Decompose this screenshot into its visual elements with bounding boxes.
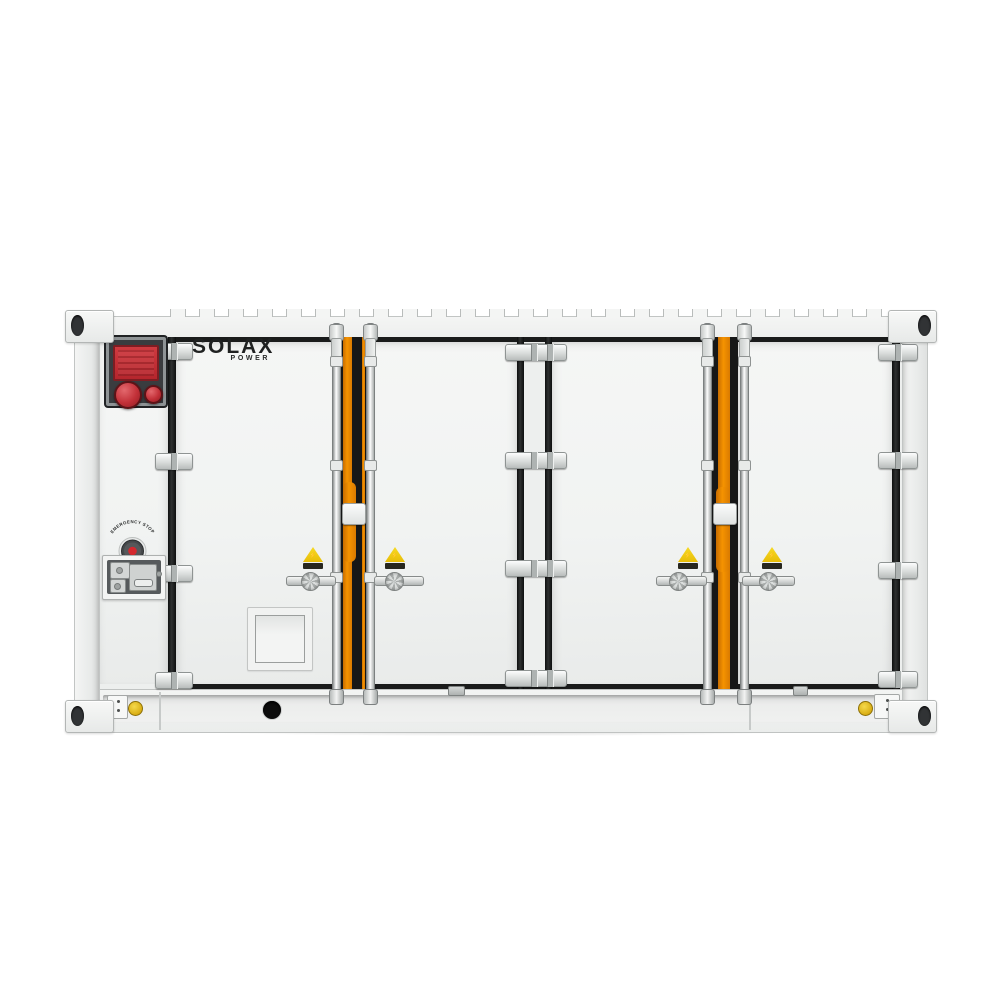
channel-divider [159, 692, 161, 730]
rod-guide [364, 460, 377, 471]
warning-triangle-icon: ⚡ [762, 547, 782, 562]
door-hinge-double [505, 344, 567, 361]
product-image-canvas: ⚡ DANGER ⚡ DANGER ⚡ DANGER ⚡ DANGER SOLA… [0, 0, 1000, 1000]
brand-name: SOLAX [192, 337, 272, 357]
rod-guide [701, 356, 714, 367]
outlet-plate [129, 564, 157, 591]
door-edge-strip-right [892, 337, 900, 689]
socket-pin [117, 709, 120, 712]
switch-dot [116, 567, 123, 574]
corner-casting-top-right [888, 310, 937, 343]
warning-triangle-icon: ⚡ [678, 547, 698, 562]
corner-casting-top-left [65, 310, 114, 343]
sill-latch [448, 686, 465, 696]
drain-hole [263, 701, 281, 719]
control-screen [113, 345, 159, 381]
control-box [104, 335, 168, 408]
emergency-stop-red-cap [128, 547, 137, 556]
outlet-slot [134, 579, 153, 587]
lock-rod [703, 323, 712, 705]
door-hinge-double [505, 670, 567, 687]
emergency-stop-arc-label: EMERGENCY STOP [109, 519, 155, 534]
brand-logo: SOLAX POWER [192, 337, 272, 362]
lightning-icon: ⚡ [766, 551, 779, 561]
warning-label: ⚡ DANGER [676, 547, 700, 569]
bottom-channel [103, 695, 899, 723]
danger-strip: DANGER [762, 563, 782, 569]
duct-clip [713, 503, 737, 525]
corner-post-left [74, 338, 100, 706]
door-gasket-top [168, 337, 900, 342]
door-hinge [878, 562, 918, 579]
danger-strip: DANGER [678, 563, 698, 569]
socket-pin [117, 700, 120, 703]
warning-label: ⚡ DANGER [383, 547, 407, 569]
casting-hole [918, 315, 931, 336]
handle-hub [301, 572, 320, 591]
switch-dot [114, 583, 121, 590]
door-edge-strip-left [168, 337, 176, 689]
door-3 [552, 342, 711, 684]
control-button-large [114, 381, 142, 409]
rod-guide [364, 356, 377, 367]
warning-label: ⚡ DANGER [760, 547, 784, 569]
casting-hole [71, 315, 84, 336]
door-hinge [155, 453, 193, 470]
cable-duct-left [341, 337, 367, 689]
sill-latch [793, 686, 808, 696]
casting-hole [918, 706, 931, 726]
access-plate-inner [255, 615, 305, 663]
door-hinge [878, 452, 918, 469]
lightning-icon: ⚡ [307, 551, 320, 561]
rod-foot [363, 689, 378, 705]
door-hinge [878, 671, 918, 688]
door-handle [742, 576, 795, 586]
door-edge-strip-center-b [545, 337, 552, 689]
access-plate [247, 607, 313, 671]
lock-rod [332, 323, 341, 705]
rod-foot [737, 689, 752, 705]
rod-foot [329, 689, 344, 705]
warning-triangle-icon: ⚡ [303, 547, 323, 562]
rod-guide [701, 460, 714, 471]
rod-foot [700, 689, 715, 705]
emergency-stop-label-text: EMERGENCY STOP [109, 519, 155, 534]
rod-guide [330, 356, 343, 367]
breaker-switch-small [110, 579, 126, 593]
rod-guide [738, 356, 751, 367]
door-edge-strip-center-a [517, 337, 524, 689]
duct-clip [342, 503, 366, 525]
warning-triangle-icon: ⚡ [385, 547, 405, 562]
lock-rod [366, 323, 375, 705]
top-rail-tabs [170, 309, 892, 317]
danger-strip: DANGER [385, 563, 405, 569]
door-hinge-double [505, 560, 567, 577]
power-socket-panel [102, 555, 166, 600]
door-handle [656, 576, 707, 586]
breaker-switch [110, 562, 130, 579]
door-4 [738, 342, 892, 684]
bottom-rail [96, 689, 906, 733]
indicator-yellow-right [858, 701, 873, 716]
danger-strip: DANGER [303, 563, 323, 569]
door-hinge-double [505, 452, 567, 469]
cable-duct-right [711, 337, 738, 689]
control-button-small [144, 385, 163, 404]
handle-hub [669, 572, 688, 591]
lightning-icon: ⚡ [389, 551, 402, 561]
lightning-icon: ⚡ [682, 551, 695, 561]
door-handle [286, 576, 336, 586]
door-handle [374, 576, 424, 586]
door-hinge [155, 672, 193, 689]
duct-orange-cable [716, 487, 730, 572]
warning-label: ⚡ DANGER [301, 547, 325, 569]
door-hinge [878, 344, 918, 361]
corner-post-right [902, 338, 928, 706]
handle-hub [759, 572, 778, 591]
door-2 [367, 342, 517, 684]
corner-casting-bottom-left [65, 700, 114, 733]
corner-casting-bottom-right [888, 700, 937, 733]
rod-guide [330, 460, 343, 471]
handle-hub [385, 572, 404, 591]
casting-hole [71, 706, 84, 726]
lock-rod [740, 323, 749, 705]
rod-guide [738, 460, 751, 471]
indicator-yellow-left [128, 701, 143, 716]
panel-screw [156, 571, 162, 577]
